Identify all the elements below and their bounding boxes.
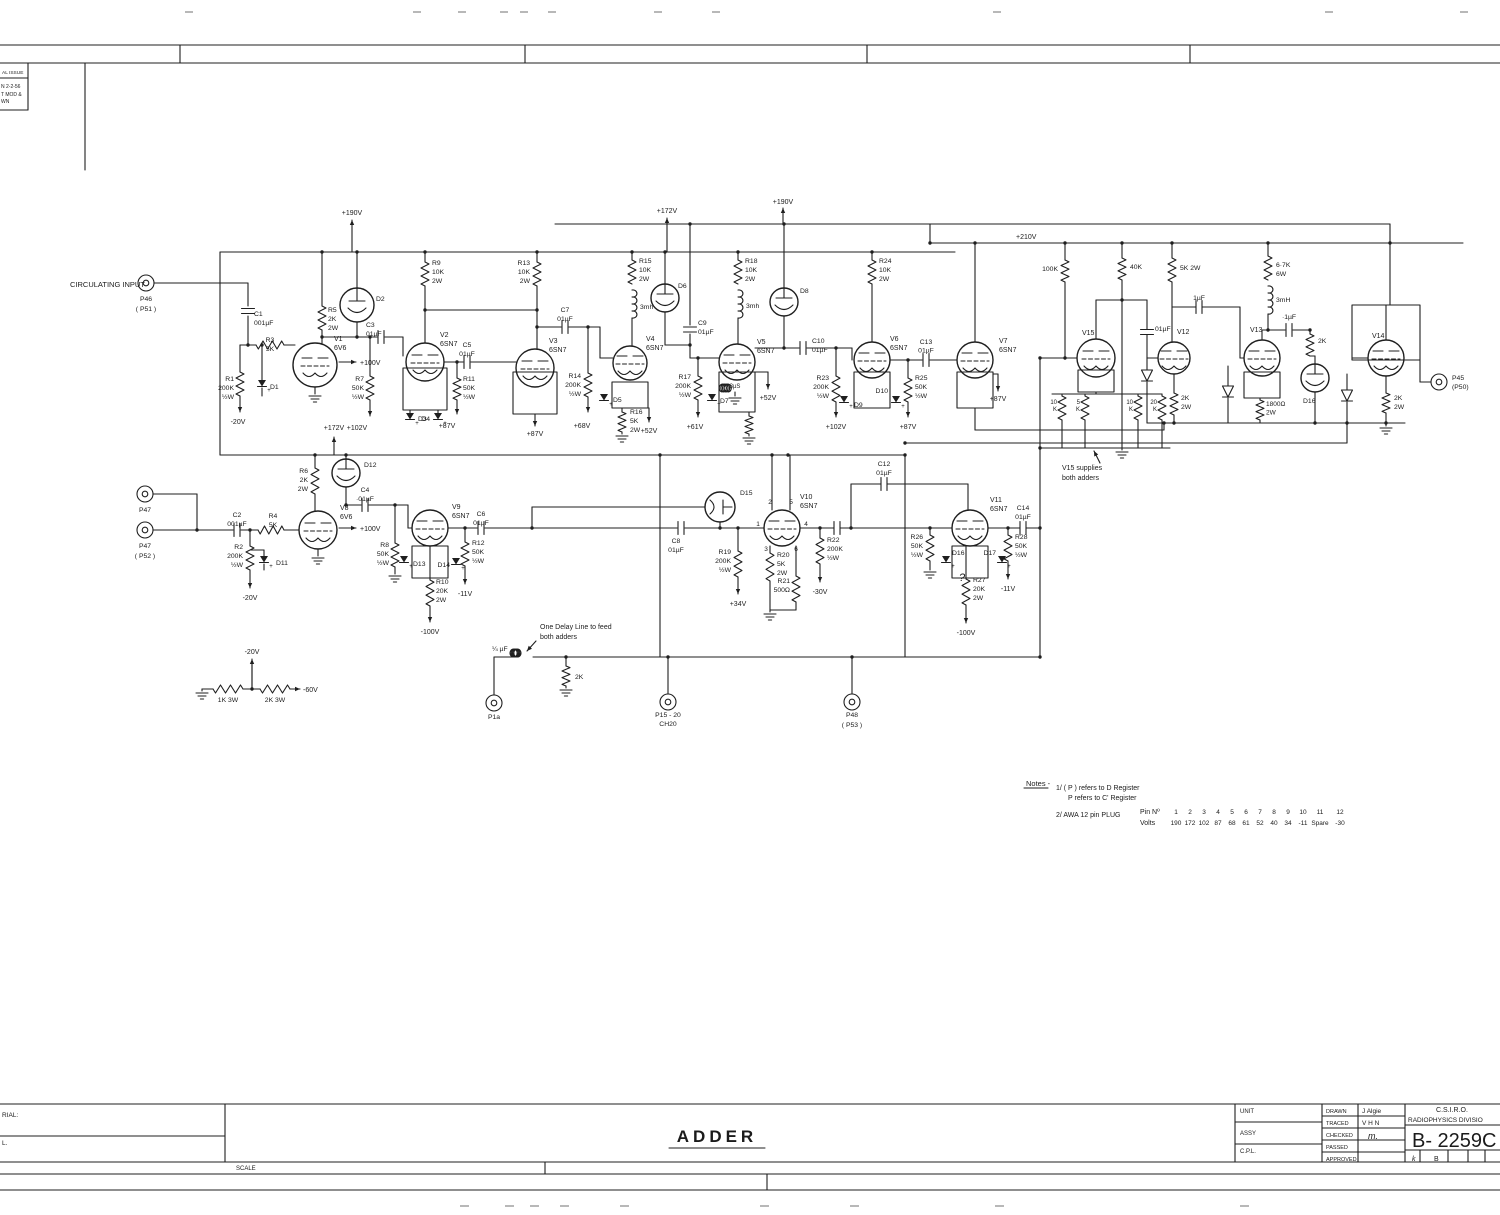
junction-dot	[535, 308, 538, 311]
label-1: ·01µF	[356, 496, 374, 503]
connector-pin	[665, 699, 671, 705]
label-0: 190	[1171, 820, 1182, 827]
label-1: 2K	[328, 316, 337, 323]
label-6: 7	[1258, 809, 1262, 816]
label-2: 2W	[639, 276, 650, 283]
label-1: 200K	[218, 385, 234, 392]
label-1: 6SN7	[990, 506, 1008, 513]
label-2: 2W	[436, 597, 447, 604]
tube-V5	[719, 344, 755, 380]
label-1: 50K	[463, 385, 476, 392]
label-n2: 2/ AWA 12 pin PLUG	[1056, 812, 1120, 819]
label-1: 10K	[639, 267, 652, 274]
label-0: P47	[139, 507, 151, 514]
tube-cathode	[618, 371, 642, 375]
diode-icon	[840, 396, 848, 403]
label-1: 50K	[911, 543, 924, 550]
label-1: T MOD &	[1, 92, 22, 98]
label-10: 11	[1317, 809, 1324, 816]
label-2: ½W	[569, 390, 582, 398]
label-org_line2: RADIOPHYSICS DIVISIO	[1408, 1117, 1483, 1124]
circuit-labels: CIRCULATING INPUTV15 suppliesboth adders…	[1, 70, 1497, 1172]
label-vp172b: +172V	[324, 425, 345, 432]
stage-envelope-box	[612, 382, 648, 408]
junction-dot	[564, 655, 567, 658]
label-1: 5K	[777, 561, 786, 568]
label-traced_value: V H N	[1362, 1120, 1380, 1127]
label-0: R10	[436, 579, 449, 586]
label-0: C4	[361, 487, 370, 494]
label-vp68: +68V	[574, 423, 591, 430]
resistor	[236, 372, 244, 396]
label-vm11a: -11V	[458, 591, 473, 598]
label-0: C14	[1017, 505, 1030, 512]
junction-dot	[1172, 421, 1175, 424]
label-1: 200K	[813, 384, 829, 391]
label-res_2K3W: 2K 3W	[265, 697, 286, 704]
label-2: 3	[1202, 809, 1206, 816]
junction-dot	[782, 222, 785, 225]
tube-cathode	[337, 476, 355, 481]
label-2: WN	[1, 99, 10, 105]
junction-dot	[658, 453, 661, 456]
label-0: k	[1412, 1156, 1416, 1163]
label-1: 01µF	[473, 520, 489, 527]
label-1: K	[1053, 407, 1057, 413]
label-2: ½W	[719, 566, 732, 574]
label-1: 6SN7	[800, 503, 818, 510]
label-1: B	[1434, 1156, 1439, 1163]
junction-dot	[1120, 298, 1123, 301]
junction-dot	[1162, 421, 1165, 424]
label-1: 200K	[715, 558, 731, 565]
diode-icon	[434, 413, 442, 420]
junction-dot	[195, 528, 198, 531]
tube-cathode	[963, 368, 987, 372]
label-7: 8	[1272, 809, 1276, 816]
label-vm20a: -20V	[231, 419, 246, 426]
label-D17: D17	[984, 550, 997, 557]
tube-cathode	[523, 376, 547, 380]
resistor	[1264, 256, 1272, 280]
junction-dot	[850, 655, 853, 658]
label-0: P45	[1452, 375, 1464, 382]
label-0: R18	[745, 258, 758, 265]
label-vm60: -60V	[303, 687, 318, 694]
label-volts_label: Volts	[1140, 820, 1156, 827]
label-approved_label: APPROVED	[1326, 1157, 1357, 1163]
junction-dot	[1266, 241, 1269, 244]
label-1: 6SN7	[646, 345, 664, 352]
arrow-head-icon	[351, 360, 356, 364]
resistor	[213, 685, 243, 693]
connector-P15-20	[660, 694, 676, 710]
resistor	[318, 306, 326, 330]
resistor	[1382, 393, 1390, 413]
resistor	[391, 543, 399, 567]
arrow-head-icon	[834, 412, 838, 417]
label-1: 6V6	[340, 514, 353, 521]
diode-plus-mark: +	[269, 564, 273, 570]
label-D14: D14	[438, 562, 451, 569]
label-1: 50K	[377, 551, 390, 558]
label-material_label: RIAL:	[2, 1112, 18, 1119]
tube-cathode	[770, 536, 794, 540]
junction-dot	[1038, 446, 1041, 449]
arrow-head-icon	[238, 407, 242, 412]
resistor	[584, 373, 592, 397]
resistor	[792, 576, 800, 602]
label-1: 6W	[1276, 271, 1287, 278]
inductor-coil	[738, 290, 743, 318]
label-1: 10K	[432, 269, 445, 276]
label-11: -30	[1335, 820, 1345, 827]
label-title: ADDER	[677, 1127, 757, 1146]
label-0: 1800Ω	[1266, 401, 1285, 408]
label-0: V3	[549, 338, 558, 345]
label-0: R14	[569, 373, 582, 380]
label-1: 50K	[472, 549, 485, 556]
label-0: C6	[477, 511, 486, 518]
label-D16t: D16	[1303, 398, 1316, 405]
label-drawn_value: J Algie	[1362, 1108, 1382, 1115]
junction-dot	[344, 453, 347, 456]
tube-cathode	[775, 305, 793, 310]
tube-V12	[1158, 342, 1190, 374]
junction-dot	[535, 325, 538, 328]
arrow-head-icon	[350, 220, 354, 225]
resistor	[366, 376, 374, 400]
junction-dot	[1006, 526, 1009, 529]
resistor	[1256, 400, 1264, 420]
label-0: R19	[719, 549, 732, 556]
junction-dot	[1388, 241, 1391, 244]
tube-plate	[710, 500, 714, 514]
arrow-head-icon	[781, 208, 785, 213]
label-0: R26	[911, 534, 924, 541]
label-4: 3	[764, 546, 768, 553]
resistor	[562, 666, 570, 686]
tube-cathode	[1162, 366, 1186, 370]
inductor-coil	[632, 290, 637, 318]
label-0: P46	[140, 296, 152, 303]
label-cap_01uF: 01µF	[1155, 326, 1171, 333]
label-2: ½W	[377, 559, 390, 567]
label-n1b: P refers to C' Register	[1068, 795, 1137, 802]
label-vm11b: -11V	[1001, 586, 1016, 593]
label-0: V8	[340, 505, 349, 512]
label-2: ½W	[817, 392, 830, 400]
tube-cathode	[1374, 366, 1398, 370]
label-0: R9	[432, 260, 441, 267]
label-1: 10K	[745, 267, 758, 274]
connector-P1a	[486, 695, 502, 711]
junction-dot	[928, 241, 931, 244]
label-1: 2W	[1266, 410, 1277, 417]
label-2: 2W	[879, 276, 890, 283]
label-2: ½W	[679, 391, 692, 399]
label-vm20c: -20V	[245, 649, 260, 656]
label-D2: D2	[376, 296, 385, 303]
tube-V1	[293, 343, 337, 387]
resistor	[1170, 393, 1178, 415]
label-1: 6SN7	[549, 347, 567, 354]
arrow-head-icon	[248, 583, 252, 588]
label-0: 6·7K	[1276, 262, 1291, 269]
label-0: C9	[698, 320, 707, 327]
label-2: 1	[756, 521, 760, 528]
label-vp100b: +100V	[360, 526, 381, 533]
label-0: R1	[225, 376, 234, 383]
label-1: 20K	[973, 586, 986, 593]
label-5: 6	[794, 546, 798, 553]
label-0: C1	[254, 311, 263, 318]
junction-dot	[630, 250, 633, 253]
label-0: R15	[639, 258, 652, 265]
connector-P48	[844, 694, 860, 710]
label-vp52b: +52V	[760, 395, 777, 402]
label-v15_note1: V15 supplies	[1062, 465, 1103, 472]
label-2: 2W	[973, 595, 984, 602]
label-0: R13	[518, 260, 531, 267]
adder-schematic-canvas: ++++++++++++ CIRCULATING INPUTV15 suppli…	[0, 0, 1500, 1215]
junction-dot	[393, 503, 396, 506]
label-L4: 3µS	[730, 384, 741, 390]
junction-dot	[663, 250, 666, 253]
diode-plus-mark: +	[849, 404, 853, 410]
label-0: V2	[440, 332, 449, 339]
label-1: 5K	[269, 522, 278, 529]
resistor	[1168, 258, 1176, 282]
label-1: 2W	[1181, 404, 1192, 411]
label-vp61: +61V	[687, 424, 704, 431]
label-delay_note2: both adders	[540, 634, 577, 641]
junction-dot	[928, 526, 931, 529]
label-6: 52	[1256, 820, 1264, 827]
label-9: -11	[1299, 820, 1308, 827]
label-1: 2W	[1394, 404, 1405, 411]
resistor	[734, 260, 742, 284]
resistor	[904, 378, 912, 402]
label-1: 01µF	[366, 331, 382, 338]
label-D12: D12	[364, 462, 377, 469]
arrow-head-icon	[332, 437, 336, 442]
connector-P45	[1431, 374, 1447, 390]
connector-pin	[142, 491, 148, 497]
junction-dot	[246, 343, 249, 346]
label-D10: D10	[876, 388, 889, 395]
label-vp87d: +87V	[990, 396, 1007, 403]
label-0: 10	[1050, 400, 1057, 406]
resistor	[926, 535, 934, 561]
label-1: K	[1153, 407, 1157, 413]
junction-dot	[786, 453, 789, 456]
connector-pin	[142, 527, 148, 533]
label-2: ½W	[463, 393, 476, 401]
junction-dot	[455, 360, 458, 363]
label-2: ½W	[1015, 551, 1028, 559]
label-cap_quarter: ¼ µF	[492, 646, 508, 653]
diode-icon	[400, 556, 408, 563]
label-passed_label: PASSED	[1326, 1145, 1348, 1151]
label-1: 01µF	[918, 348, 934, 355]
label-checked_label: CHECKED	[1326, 1133, 1353, 1139]
resistor	[816, 538, 824, 564]
junction-dot	[870, 250, 873, 253]
label-0: R27	[973, 577, 986, 584]
label-0: V13	[1250, 327, 1263, 334]
diode-icon	[600, 394, 608, 401]
label-0: 1	[1174, 809, 1178, 816]
label-0: R8	[380, 542, 389, 549]
label-1: 01µF	[557, 316, 573, 323]
arrow-head-icon	[250, 659, 254, 664]
label-res_40K: 40K	[1130, 264, 1143, 271]
resistor	[426, 580, 434, 606]
label-2: ½W	[352, 393, 365, 401]
label-1: ( P53 )	[842, 722, 862, 729]
label-0: V14	[1372, 333, 1385, 340]
label-1: 10K	[879, 267, 892, 274]
arrow-head-icon	[428, 617, 432, 622]
resistor	[628, 260, 636, 284]
label-0: 20	[1150, 400, 1157, 406]
label-0: R2	[234, 544, 243, 551]
label-0: 2K	[1181, 395, 1190, 402]
label-2: ½W	[915, 392, 928, 400]
label-0: P1a	[488, 714, 500, 721]
junction-dot	[718, 526, 721, 529]
label-0: R12	[472, 540, 485, 547]
sheet-border	[0, 12, 1500, 1206]
label-1: 001µF	[254, 320, 273, 327]
tube-V4	[613, 346, 647, 380]
label-1: 01µF	[698, 329, 714, 336]
label-7: 40	[1270, 820, 1278, 827]
label-1: 01µF	[1015, 514, 1031, 521]
label-11: 12	[1336, 809, 1344, 816]
tube-V6	[854, 342, 890, 378]
label-1: 6SN7	[999, 347, 1017, 354]
label-0: V5	[757, 339, 766, 346]
resistor	[1134, 396, 1142, 420]
label-1: 2	[1188, 809, 1192, 816]
label-0: P15 - 20	[655, 712, 681, 719]
junction-dot	[1345, 421, 1348, 424]
resistor	[1058, 396, 1066, 420]
label-0: R24	[879, 258, 892, 265]
label-0: V15	[1082, 330, 1095, 337]
label-0: C12	[878, 461, 891, 468]
junction-dot	[530, 526, 533, 529]
junction-dot	[834, 346, 837, 349]
label-vm100a: -100V	[421, 629, 440, 636]
junction-dot	[696, 356, 699, 359]
label-0: C10	[812, 338, 825, 345]
resistor	[1158, 396, 1166, 420]
label-1: 01µF	[812, 347, 828, 354]
diode-icon	[708, 394, 716, 401]
label-0: C5	[463, 342, 472, 349]
label-0: R22	[827, 537, 840, 544]
label-vp100a: +100V	[360, 360, 381, 367]
label-0: R6	[299, 468, 308, 475]
junction-dot	[423, 308, 426, 311]
label-vm30: -30V	[813, 589, 828, 596]
label-vp210: +210V	[1016, 234, 1037, 241]
label-vp87b: +87V	[527, 431, 544, 438]
label-0: C13	[920, 339, 933, 346]
label-vp87c: +87V	[900, 424, 917, 431]
tube-V8	[299, 511, 337, 549]
junction-dot	[1384, 421, 1387, 424]
junction-dot	[248, 528, 251, 531]
label-1: 5	[789, 499, 793, 506]
label-0: V12	[1177, 329, 1190, 336]
label-D13: D13	[413, 561, 426, 568]
label-D6: D6	[678, 283, 687, 290]
tube-V9	[412, 510, 448, 546]
junction-dot	[688, 222, 691, 225]
label-vm20b: -20V	[243, 595, 258, 602]
junction-dot	[973, 241, 976, 244]
label-assy_label: ASSY	[1240, 1131, 1256, 1137]
junction-dot	[1038, 655, 1041, 658]
label-0: C3	[366, 322, 375, 329]
label-vp87a: +87V	[439, 423, 456, 430]
label-3: 87	[1214, 820, 1222, 827]
label-L3: 3mH	[1276, 297, 1290, 304]
tube-V2	[406, 343, 444, 381]
stage-envelope-box	[1078, 370, 1114, 392]
label-1: 10K	[518, 269, 531, 276]
label-1: (P50)	[1452, 384, 1469, 391]
junction-dot	[849, 526, 852, 529]
label-2: 2W	[745, 276, 756, 283]
junction-dot	[666, 655, 669, 658]
diode-triangle-icon	[1342, 390, 1353, 401]
label-1: 01µF	[876, 470, 892, 477]
resistor	[260, 685, 290, 693]
label-vp102a: +102V	[347, 425, 368, 432]
label-v15_note2: both adders	[1062, 475, 1099, 482]
resistor	[461, 542, 469, 566]
label-0: R23	[817, 375, 830, 382]
label-0: C7	[561, 307, 570, 314]
label-L2: 3mh	[746, 303, 759, 310]
label-1: 50K	[352, 385, 365, 392]
label-vm100b: -100V	[957, 630, 976, 637]
label-1: 50K	[1015, 543, 1028, 550]
connector-pin	[849, 699, 855, 705]
junction-dot	[586, 325, 589, 328]
label-drawn_label: DRAWN	[1326, 1109, 1347, 1115]
label-1: 200K	[827, 546, 843, 553]
label-0: V7	[999, 338, 1008, 345]
diode-icon	[942, 556, 950, 563]
tube-V10	[764, 510, 800, 546]
diode-icon	[258, 380, 266, 387]
label-1: K	[1076, 407, 1080, 413]
arrow-head-icon	[964, 618, 968, 623]
label-0: R17	[679, 374, 692, 381]
junction-dot	[463, 526, 466, 529]
junction-dot	[423, 250, 426, 253]
label-traced_label: TRACED	[1326, 1121, 1349, 1127]
resistor	[1306, 334, 1314, 356]
resistor	[766, 553, 774, 581]
junction-dot	[736, 526, 739, 529]
